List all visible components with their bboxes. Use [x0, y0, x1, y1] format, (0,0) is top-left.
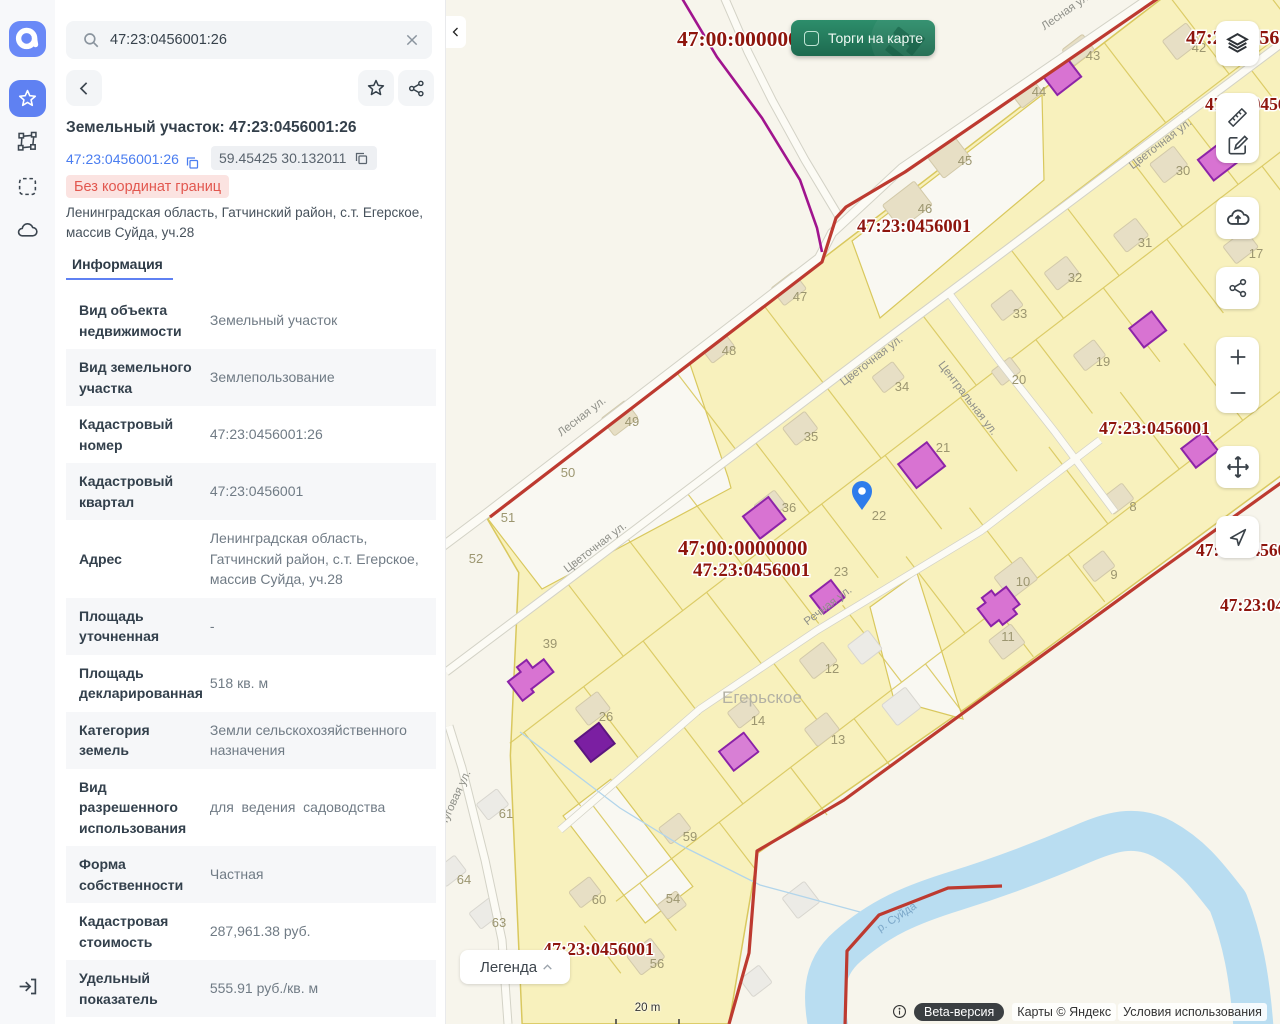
svg-text:20: 20 [1012, 372, 1026, 387]
svg-text:30: 30 [1176, 163, 1190, 178]
svg-text:26: 26 [599, 709, 613, 724]
svg-text:48: 48 [722, 343, 736, 358]
svg-text:11: 11 [1001, 629, 1015, 644]
svg-text:60: 60 [592, 892, 606, 907]
svg-text:13: 13 [831, 732, 845, 747]
svg-text:23: 23 [834, 564, 848, 579]
svg-text:47: 47 [793, 289, 807, 304]
svg-text:63: 63 [492, 915, 506, 930]
svg-text:35: 35 [804, 429, 818, 444]
svg-text:52: 52 [469, 551, 483, 566]
svg-text:32: 32 [1068, 270, 1082, 285]
svg-text:19: 19 [1096, 354, 1110, 369]
svg-text:36: 36 [782, 500, 796, 515]
svg-text:Егерьское: Егерьское [722, 688, 802, 707]
svg-text:64: 64 [457, 872, 471, 887]
svg-text:39: 39 [543, 636, 557, 651]
svg-text:33: 33 [1013, 306, 1027, 321]
svg-text:12: 12 [825, 661, 839, 676]
svg-text:17: 17 [1249, 246, 1263, 261]
svg-text:43: 43 [1086, 48, 1100, 63]
svg-text:59: 59 [683, 829, 697, 844]
svg-text:9: 9 [1110, 567, 1117, 582]
svg-text:47:23:0456001: 47:23:0456001 [693, 560, 810, 581]
svg-text:50: 50 [561, 465, 575, 480]
svg-text:10: 10 [1016, 574, 1030, 589]
svg-text:22: 22 [872, 508, 886, 523]
svg-text:45: 45 [958, 153, 972, 168]
svg-text:47:23:0456001: 47:23:0456001 [1220, 595, 1280, 615]
svg-text:44: 44 [1032, 84, 1046, 99]
svg-text:47:00:0000000: 47:00:0000000 [677, 27, 810, 51]
svg-text:34: 34 [895, 379, 909, 394]
svg-text:14: 14 [751, 713, 765, 728]
svg-text:31: 31 [1138, 235, 1152, 250]
svg-text:61: 61 [499, 806, 513, 821]
svg-text:49: 49 [625, 414, 639, 429]
svg-text:47:23:0456001: 47:23:0456001 [857, 217, 971, 237]
svg-text:8: 8 [1129, 499, 1136, 514]
svg-text:21: 21 [936, 440, 950, 455]
svg-text:54: 54 [666, 891, 680, 906]
svg-text:47:00:0000000: 47:00:0000000 [678, 536, 808, 560]
svg-text:47:23:0456001: 47:23:0456001 [1099, 418, 1210, 438]
svg-text:51: 51 [501, 510, 515, 525]
svg-text:46: 46 [918, 201, 932, 216]
